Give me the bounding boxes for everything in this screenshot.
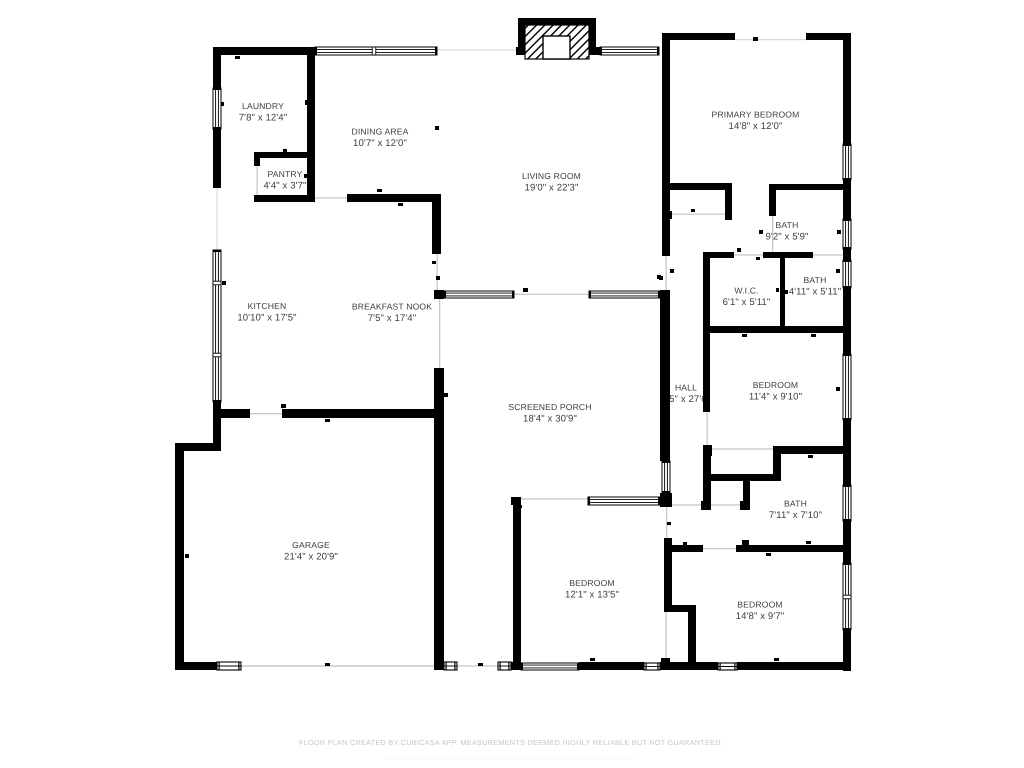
svg-text:GARAGE: GARAGE — [292, 540, 330, 550]
svg-text:11'4" x 9'10": 11'4" x 9'10" — [749, 392, 802, 403]
svg-text:4'11" x 5'11": 4'11" x 5'11" — [789, 287, 842, 298]
svg-text:6'1" x 5'11": 6'1" x 5'11" — [723, 297, 771, 308]
svg-text:BATH: BATH — [776, 220, 799, 230]
svg-text:9'2" x 5'9": 9'2" x 5'9" — [765, 232, 808, 243]
svg-text:BREAKFAST NOOK: BREAKFAST NOOK — [352, 302, 432, 312]
svg-text:14'8" x 12'0": 14'8" x 12'0" — [729, 121, 783, 132]
svg-text:PANTRY: PANTRY — [268, 169, 303, 179]
svg-text:FLOOR PLAN CREATED BY CUBICASA: FLOOR PLAN CREATED BY CUBICASA APP. MEAS… — [387, 756, 636, 761]
svg-text:BATH: BATH — [804, 275, 827, 285]
svg-text:KITCHEN: KITCHEN — [248, 301, 287, 311]
svg-text:7'5" x 17'4": 7'5" x 17'4" — [368, 313, 416, 324]
svg-text:10'7" x 12'0": 10'7" x 12'0" — [353, 138, 407, 149]
svg-text:HALL: HALL — [675, 383, 697, 393]
svg-text:BEDROOM: BEDROOM — [737, 600, 782, 610]
svg-text:7'8" x 12'4": 7'8" x 12'4" — [239, 113, 287, 124]
svg-text:DINING AREA: DINING AREA — [351, 127, 408, 137]
svg-text:FLOOR PLAN CREATED BY CUBICASA: FLOOR PLAN CREATED BY CUBICASA APP. MEAS… — [299, 738, 723, 747]
svg-text:SCREENED PORCH: SCREENED PORCH — [508, 402, 591, 412]
svg-text:7'11" x 7'10": 7'11" x 7'10" — [769, 510, 822, 521]
svg-text:18'4" x 30'9": 18'4" x 30'9" — [523, 414, 577, 425]
svg-text:LAUNDRY: LAUNDRY — [242, 101, 284, 111]
svg-text:19'0" x 22'3": 19'0" x 22'3" — [525, 183, 579, 194]
svg-text:12'1" x 13'5": 12'1" x 13'5" — [565, 590, 619, 601]
svg-text:PRIMARY BEDROOM: PRIMARY BEDROOM — [712, 110, 800, 120]
svg-text:BEDROOM: BEDROOM — [569, 578, 614, 588]
svg-text:BEDROOM: BEDROOM — [753, 380, 798, 390]
svg-text:W.I.C.: W.I.C. — [734, 286, 758, 296]
svg-text:LIVING ROOM: LIVING ROOM — [522, 171, 581, 181]
svg-text:10'10" x 17'5": 10'10" x 17'5" — [237, 313, 296, 324]
svg-text:21'4" x 20'9": 21'4" x 20'9" — [284, 552, 338, 563]
svg-text:14'8" x 9'7": 14'8" x 9'7" — [736, 611, 784, 622]
svg-text:BATH: BATH — [784, 499, 807, 509]
svg-text:4'4" x 3'7": 4'4" x 3'7" — [263, 181, 306, 192]
